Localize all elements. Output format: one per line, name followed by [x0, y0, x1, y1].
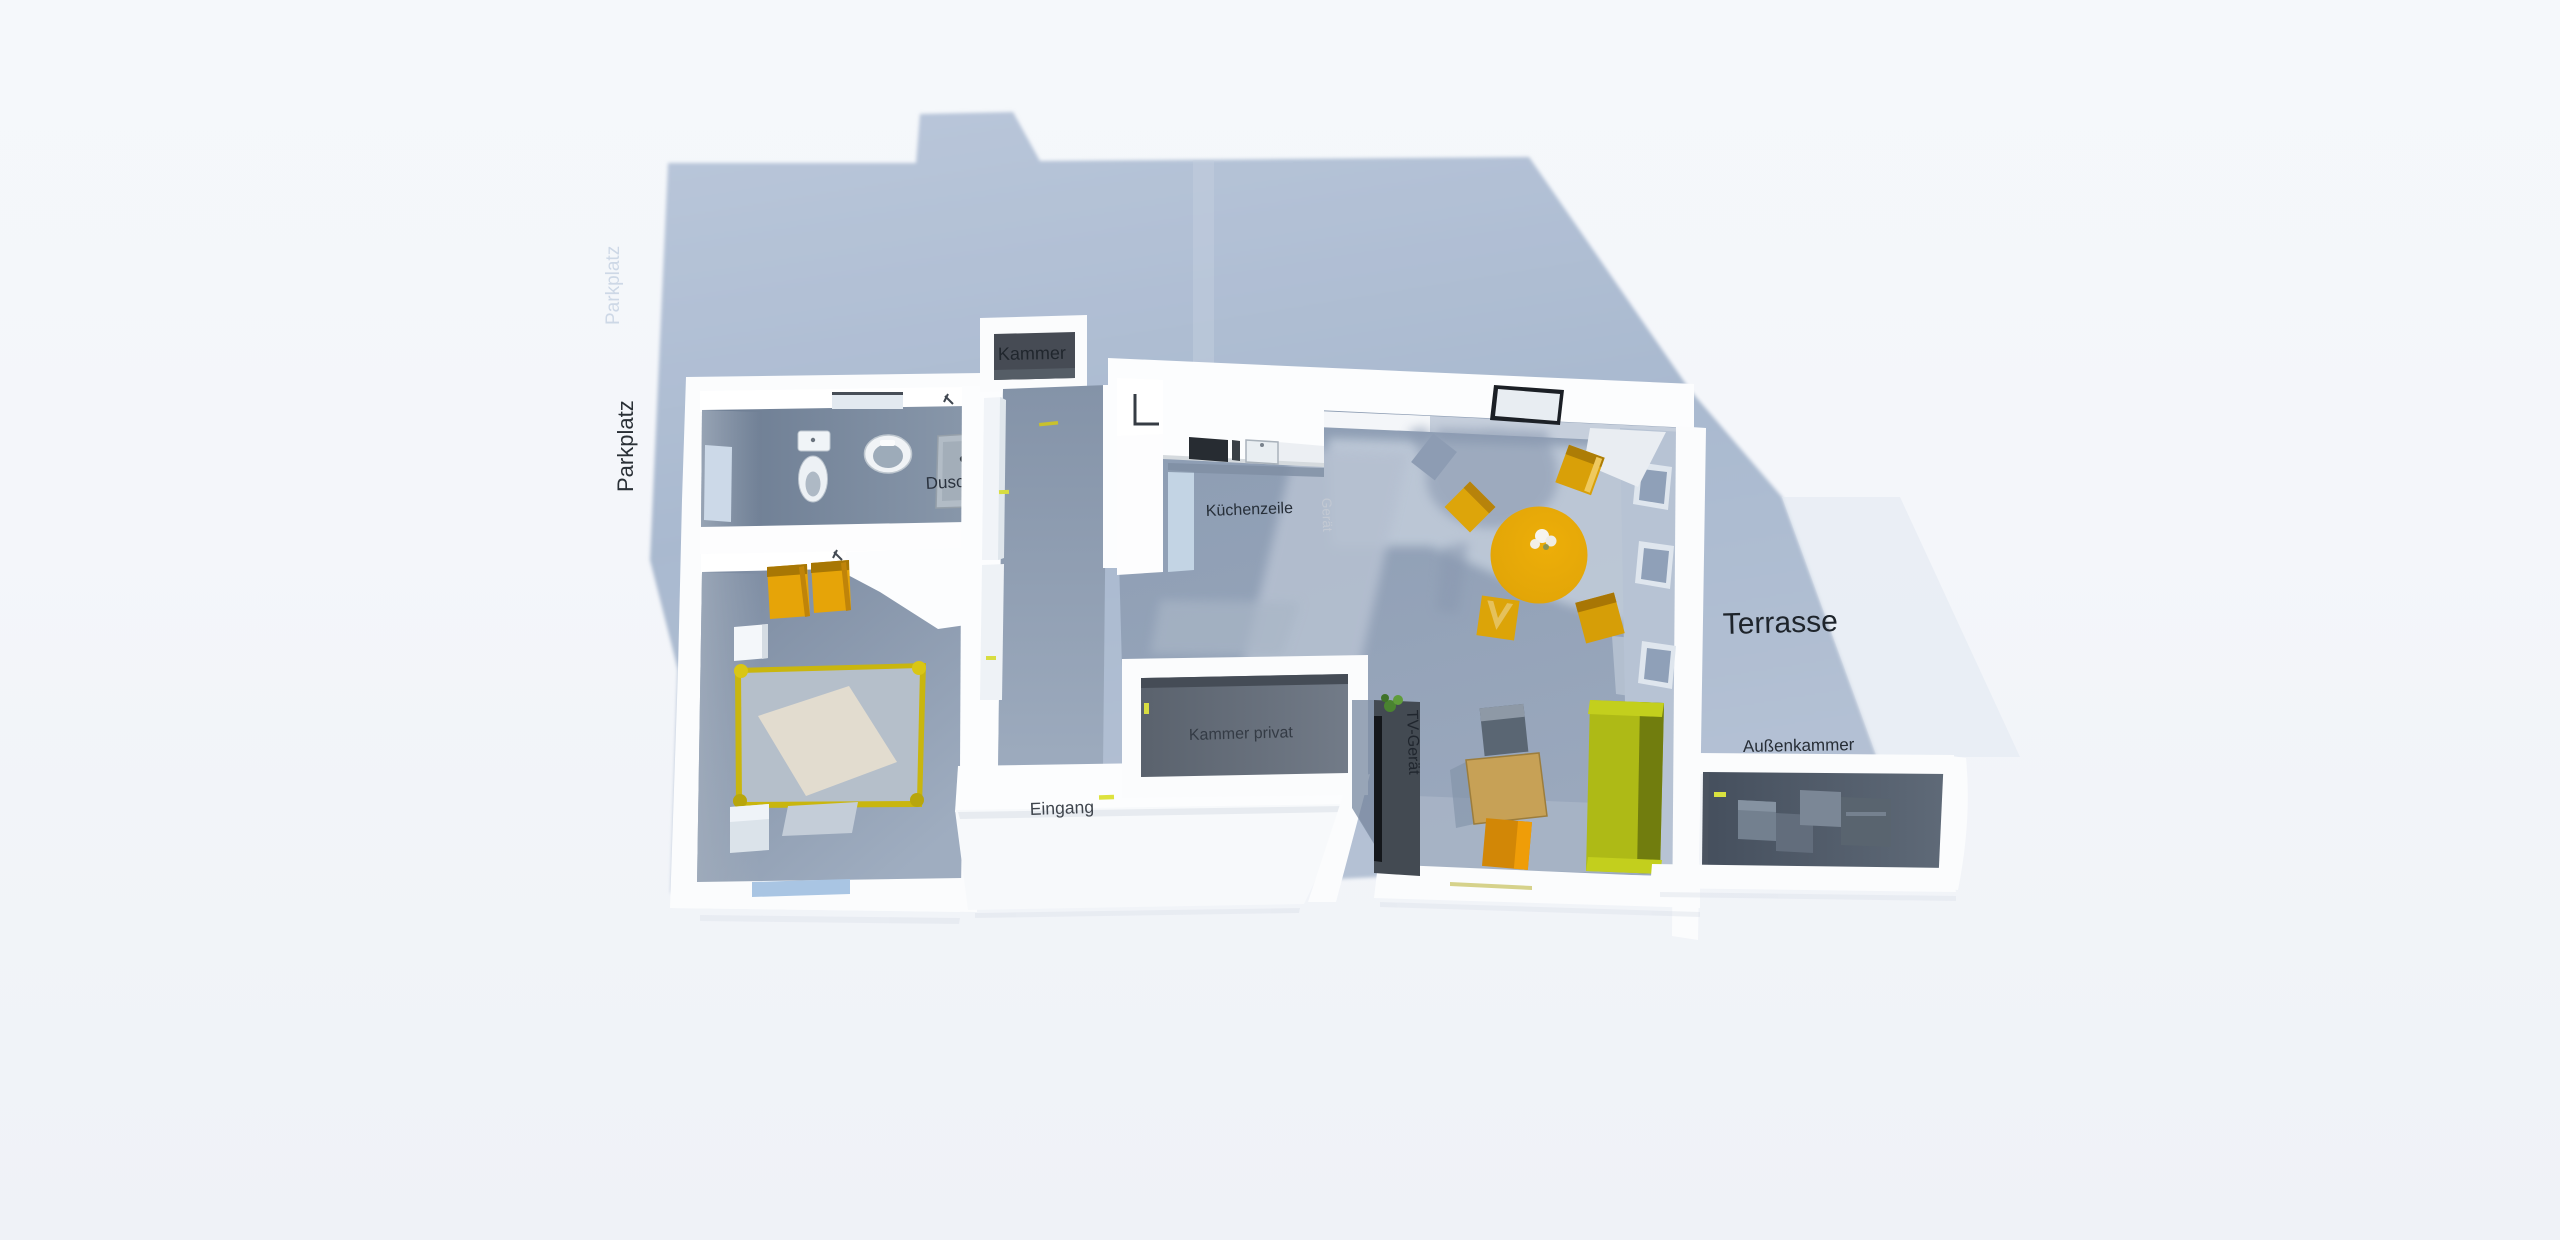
svg-text:Außenkammer: Außenkammer	[1743, 735, 1855, 756]
svg-text:Kammer: Kammer	[998, 343, 1066, 364]
svg-text:Kammer privat: Kammer privat	[1189, 724, 1294, 744]
svg-text:Eingang: Eingang	[1029, 797, 1094, 819]
svg-text:Küchenzeile: Küchenzeile	[1206, 500, 1294, 520]
svg-text:Parkplatz: Parkplatz	[613, 400, 638, 492]
svg-text:Gerät: Gerät	[1319, 498, 1335, 533]
svg-text:Parkplatz: Parkplatz	[603, 246, 624, 325]
svg-text:TV-Gerät: TV-Gerät	[1403, 710, 1422, 776]
svg-text:Terrasse: Terrasse	[1722, 605, 1838, 641]
